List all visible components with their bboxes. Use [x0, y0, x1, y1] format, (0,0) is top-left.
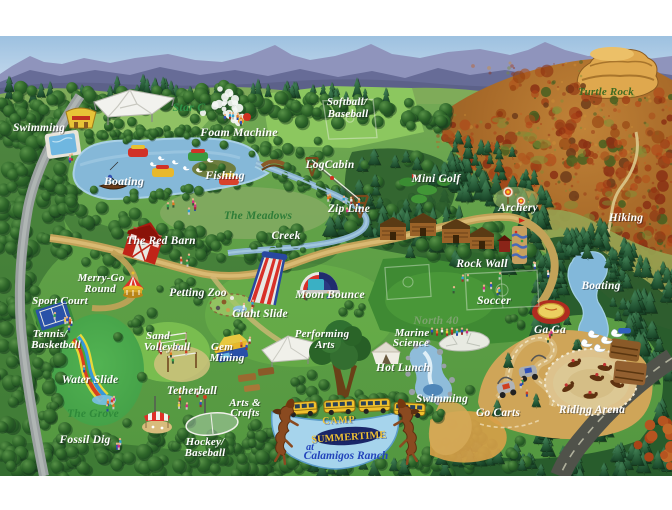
svg-text:North 40: North 40	[412, 313, 458, 327]
svg-text:Moon Bounce: Moon Bounce	[294, 289, 365, 301]
svg-text:Fossil Dig: Fossil Dig	[59, 434, 111, 446]
svg-text:Zip Line: Zip Line	[327, 203, 370, 215]
svg-text:Riding Arena: Riding Arena	[558, 404, 625, 416]
svg-text:Hiking: Hiking	[608, 212, 643, 224]
svg-text:Petting Zoo: Petting Zoo	[169, 287, 227, 299]
svg-text:Rock Wall: Rock Wall	[455, 256, 508, 270]
svg-text:Hot Lunch: Hot Lunch	[375, 362, 430, 374]
svg-text:Swimming: Swimming	[416, 393, 468, 405]
svg-text:Sport Court: Sport Court	[32, 295, 88, 307]
svg-text:Arts: Arts	[314, 339, 335, 351]
svg-text:Swimming: Swimming	[13, 122, 65, 134]
svg-text:Volleyball: Volleyball	[144, 341, 191, 353]
svg-text:Baseball: Baseball	[184, 447, 226, 459]
svg-text:LogCabin: LogCabin	[305, 159, 355, 171]
svg-text:Boating: Boating	[103, 174, 144, 188]
svg-text:Giant Slide: Giant Slide	[232, 308, 288, 320]
svg-text:Soccer: Soccer	[477, 293, 511, 307]
svg-text:The Grove: The Grove	[67, 408, 119, 420]
svg-text:Science: Science	[393, 337, 429, 349]
svg-text:Go Carts: Go Carts	[476, 407, 520, 419]
svg-text:Water Slide: Water Slide	[62, 374, 119, 386]
svg-text:Baseball: Baseball	[327, 108, 369, 120]
svg-text:The Meadows: The Meadows	[224, 210, 293, 222]
svg-text:Tetherball: Tetherball	[167, 385, 218, 397]
svg-text:Calamigos Ranch: Calamigos Ranch	[304, 450, 389, 462]
svg-text:Mining: Mining	[209, 352, 245, 364]
svg-text:CAMP: CAMP	[322, 414, 356, 427]
svg-text:Turtle Rock: Turtle Rock	[578, 86, 634, 98]
svg-text:Crafts: Crafts	[230, 407, 259, 419]
svg-text:Softball/: Softball/	[327, 96, 368, 108]
svg-text:Boating: Boating	[580, 280, 620, 292]
svg-text:Fishing: Fishing	[204, 168, 244, 182]
svg-text:Mini Golf: Mini Golf	[411, 173, 462, 185]
svg-text:Archery: Archery	[497, 202, 538, 214]
svg-text:Star C: Star C	[173, 100, 207, 114]
svg-text:Foam Machine: Foam Machine	[199, 125, 277, 139]
svg-text:Basketball: Basketball	[30, 339, 81, 351]
svg-text:Round: Round	[83, 283, 116, 295]
svg-text:Ga Ga: Ga Ga	[534, 324, 566, 336]
svg-text:Creek: Creek	[271, 230, 300, 242]
svg-text:The Red Barn: The Red Barn	[126, 235, 196, 247]
